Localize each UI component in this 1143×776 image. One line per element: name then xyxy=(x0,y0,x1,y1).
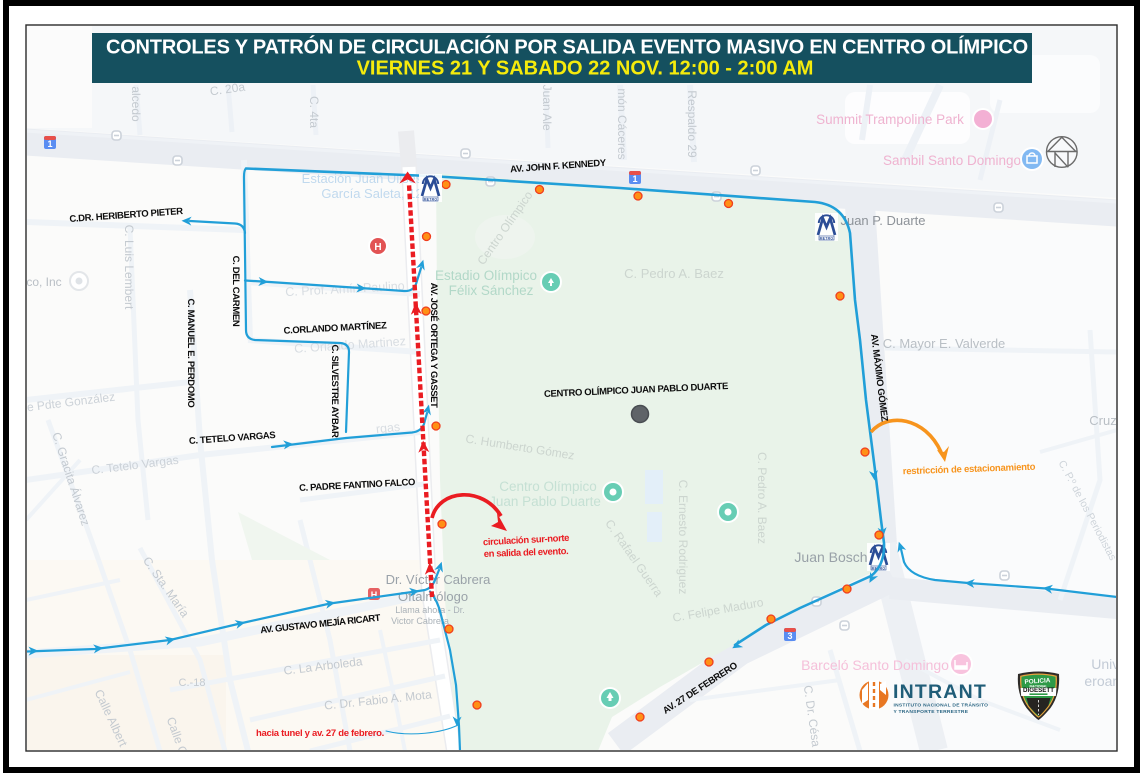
svg-text:INSTITUTO NACIONAL DE TRÁNSITO: INSTITUTO NACIONAL DE TRÁNSITO xyxy=(894,702,989,709)
svg-text:INTRANT: INTRANT xyxy=(893,681,987,703)
svg-text:3: 3 xyxy=(787,631,792,641)
svg-text:Victor Cabrera: Victor Cabrera xyxy=(391,616,449,626)
svg-text:Sambil Santo Domingo: Sambil Santo Domingo xyxy=(883,153,1021,168)
svg-text:C. Pedro A. Baez: C. Pedro A. Baez xyxy=(624,266,724,281)
svg-text:Juan Bosch: Juan Bosch xyxy=(794,549,867,565)
svg-text:C. DEL CARMEN: C. DEL CARMEN xyxy=(230,256,241,327)
svg-text:co, Inc: co, Inc xyxy=(26,275,61,289)
svg-text:VIERNES 21 Y SABADO 22 NOV. 12: VIERNES 21 Y SABADO 22 NOV. 12:00 - 2:00… xyxy=(357,58,814,80)
svg-text:C.-18: C.-18 xyxy=(179,677,206,689)
svg-text:món Cáceres: món Cáceres xyxy=(615,88,629,159)
svg-text:CONTROLES Y PATRÓN DE CIRCULAC: CONTROLES Y PATRÓN DE CIRCULACIÓN POR SA… xyxy=(106,35,1028,59)
svg-text:Juan P. Duarte: Juan P. Duarte xyxy=(840,213,925,228)
svg-text:C. Pedro A. Baez: C. Pedro A. Baez xyxy=(755,452,769,544)
svg-text:C. 4ta: C. 4ta xyxy=(307,96,321,128)
svg-text:eroameri: eroameri xyxy=(1084,673,1139,689)
svg-text:C. Mayor E. Valverde: C. Mayor E. Valverde xyxy=(883,336,1006,351)
svg-text:Y TRANSPORTE TERRESTRE: Y TRANSPORTE TERRESTRE xyxy=(894,709,969,715)
svg-text:hacia tunel y av. 27 de febrer: hacia tunel y av. 27 de febrero. xyxy=(256,728,384,739)
svg-text:C. Luis Lembert: C. Luis Lembert xyxy=(122,225,136,310)
svg-text:C. SILVESTRE AYBAR: C. SILVESTRE AYBAR xyxy=(329,344,340,438)
svg-text:Centro Olímpico: Centro Olímpico xyxy=(499,479,597,494)
svg-text:Llama ahora - Dr.: Llama ahora - Dr. xyxy=(395,605,465,615)
svg-text:Summit Trampoline Park: Summit Trampoline Park xyxy=(816,112,964,127)
svg-text:AV. JOSÉ ORTEGA Y GASSET: AV. JOSÉ ORTEGA Y GASSET xyxy=(428,283,439,408)
svg-text:NACIONAL: NACIONAL xyxy=(1030,684,1048,688)
svg-text:Juan Pablo Duarte: Juan Pablo Duarte xyxy=(489,494,601,509)
svg-text:H: H xyxy=(374,242,381,253)
svg-text:Cruz: Cruz xyxy=(1089,413,1116,428)
svg-text:Félix Sánchez: Félix Sánchez xyxy=(449,283,534,298)
svg-text:Barceló Santo Domingo: Barceló Santo Domingo xyxy=(801,657,949,673)
svg-text:Estadio Olímpico: Estadio Olímpico xyxy=(435,268,537,283)
svg-text:1: 1 xyxy=(632,174,637,184)
svg-text:C. Ernesto Rodriguez: C. Ernesto Rodriguez xyxy=(676,480,690,595)
svg-text:C. MANUEL E. PERDOMO: C. MANUEL E. PERDOMO xyxy=(185,299,196,408)
svg-text:alcedo: alcedo xyxy=(129,86,143,122)
svg-text:1: 1 xyxy=(47,139,52,149)
svg-text:Respaldo 29: Respaldo 29 xyxy=(685,90,699,158)
svg-text:Univers: Univers xyxy=(1091,656,1138,672)
